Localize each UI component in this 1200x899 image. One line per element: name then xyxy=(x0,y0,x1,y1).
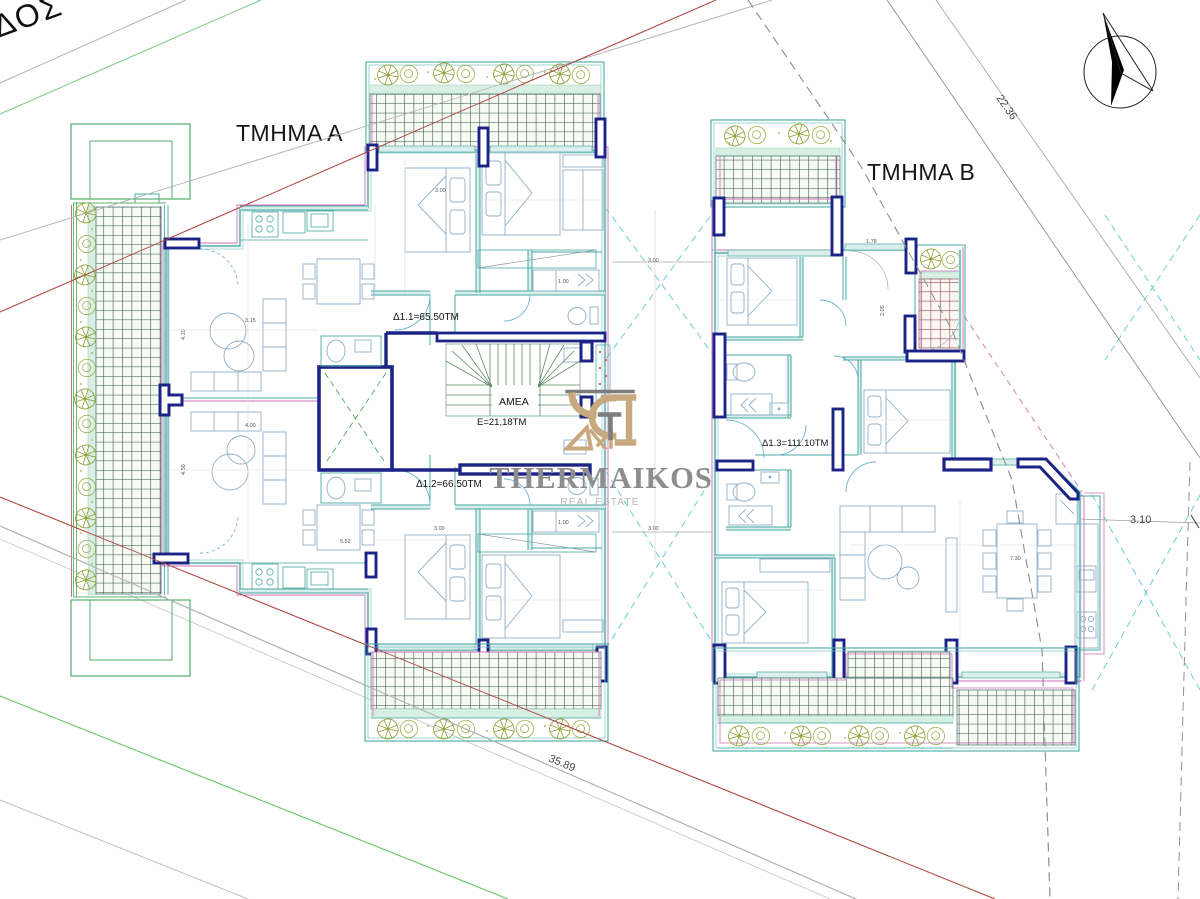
svg-text:2.05: 2.05 xyxy=(880,305,886,316)
svg-text:REAL ESTATE: REAL ESTATE xyxy=(560,497,639,508)
svg-text:1.00: 1.00 xyxy=(558,520,569,526)
svg-text:4.00: 4.00 xyxy=(245,423,256,429)
svg-text:3.15: 3.15 xyxy=(245,318,256,324)
svg-text:4.10: 4.10 xyxy=(181,329,187,340)
svg-text:3.00: 3.00 xyxy=(435,188,446,194)
svg-text:3.00: 3.00 xyxy=(648,258,659,264)
svg-text:3.00: 3.00 xyxy=(434,526,445,532)
svg-text:ΤΜΗΜΑ Β: ΤΜΗΜΑ Β xyxy=(867,159,975,185)
svg-text:1.00: 1.00 xyxy=(558,279,569,285)
svg-text:5.52: 5.52 xyxy=(340,539,351,545)
svg-text:7.30: 7.30 xyxy=(1010,556,1021,562)
svg-text:ΑΜΕΑ: ΑΜΕΑ xyxy=(499,396,529,408)
svg-text:Δ1.3=111.10ΤΜ: Δ1.3=111.10ΤΜ xyxy=(762,438,829,449)
svg-text:ΤΜΗΜΑ Α: ΤΜΗΜΑ Α xyxy=(236,120,343,146)
svg-text:3.00: 3.00 xyxy=(648,526,659,532)
svg-text:1.78: 1.78 xyxy=(866,239,877,245)
svg-text:Δ1.1=65.50ΤΜ: Δ1.1=65.50ΤΜ xyxy=(393,312,459,323)
svg-text:4.50: 4.50 xyxy=(181,464,187,475)
svg-text:Δ1.2=66.50ΤΜ: Δ1.2=66.50ΤΜ xyxy=(416,479,482,490)
svg-text:THERMAIKOS: THERMAIKOS xyxy=(489,461,713,495)
svg-text:3.10: 3.10 xyxy=(1130,514,1151,526)
svg-text:Ε=21,18ΤΜ: Ε=21,18ΤΜ xyxy=(477,417,526,428)
